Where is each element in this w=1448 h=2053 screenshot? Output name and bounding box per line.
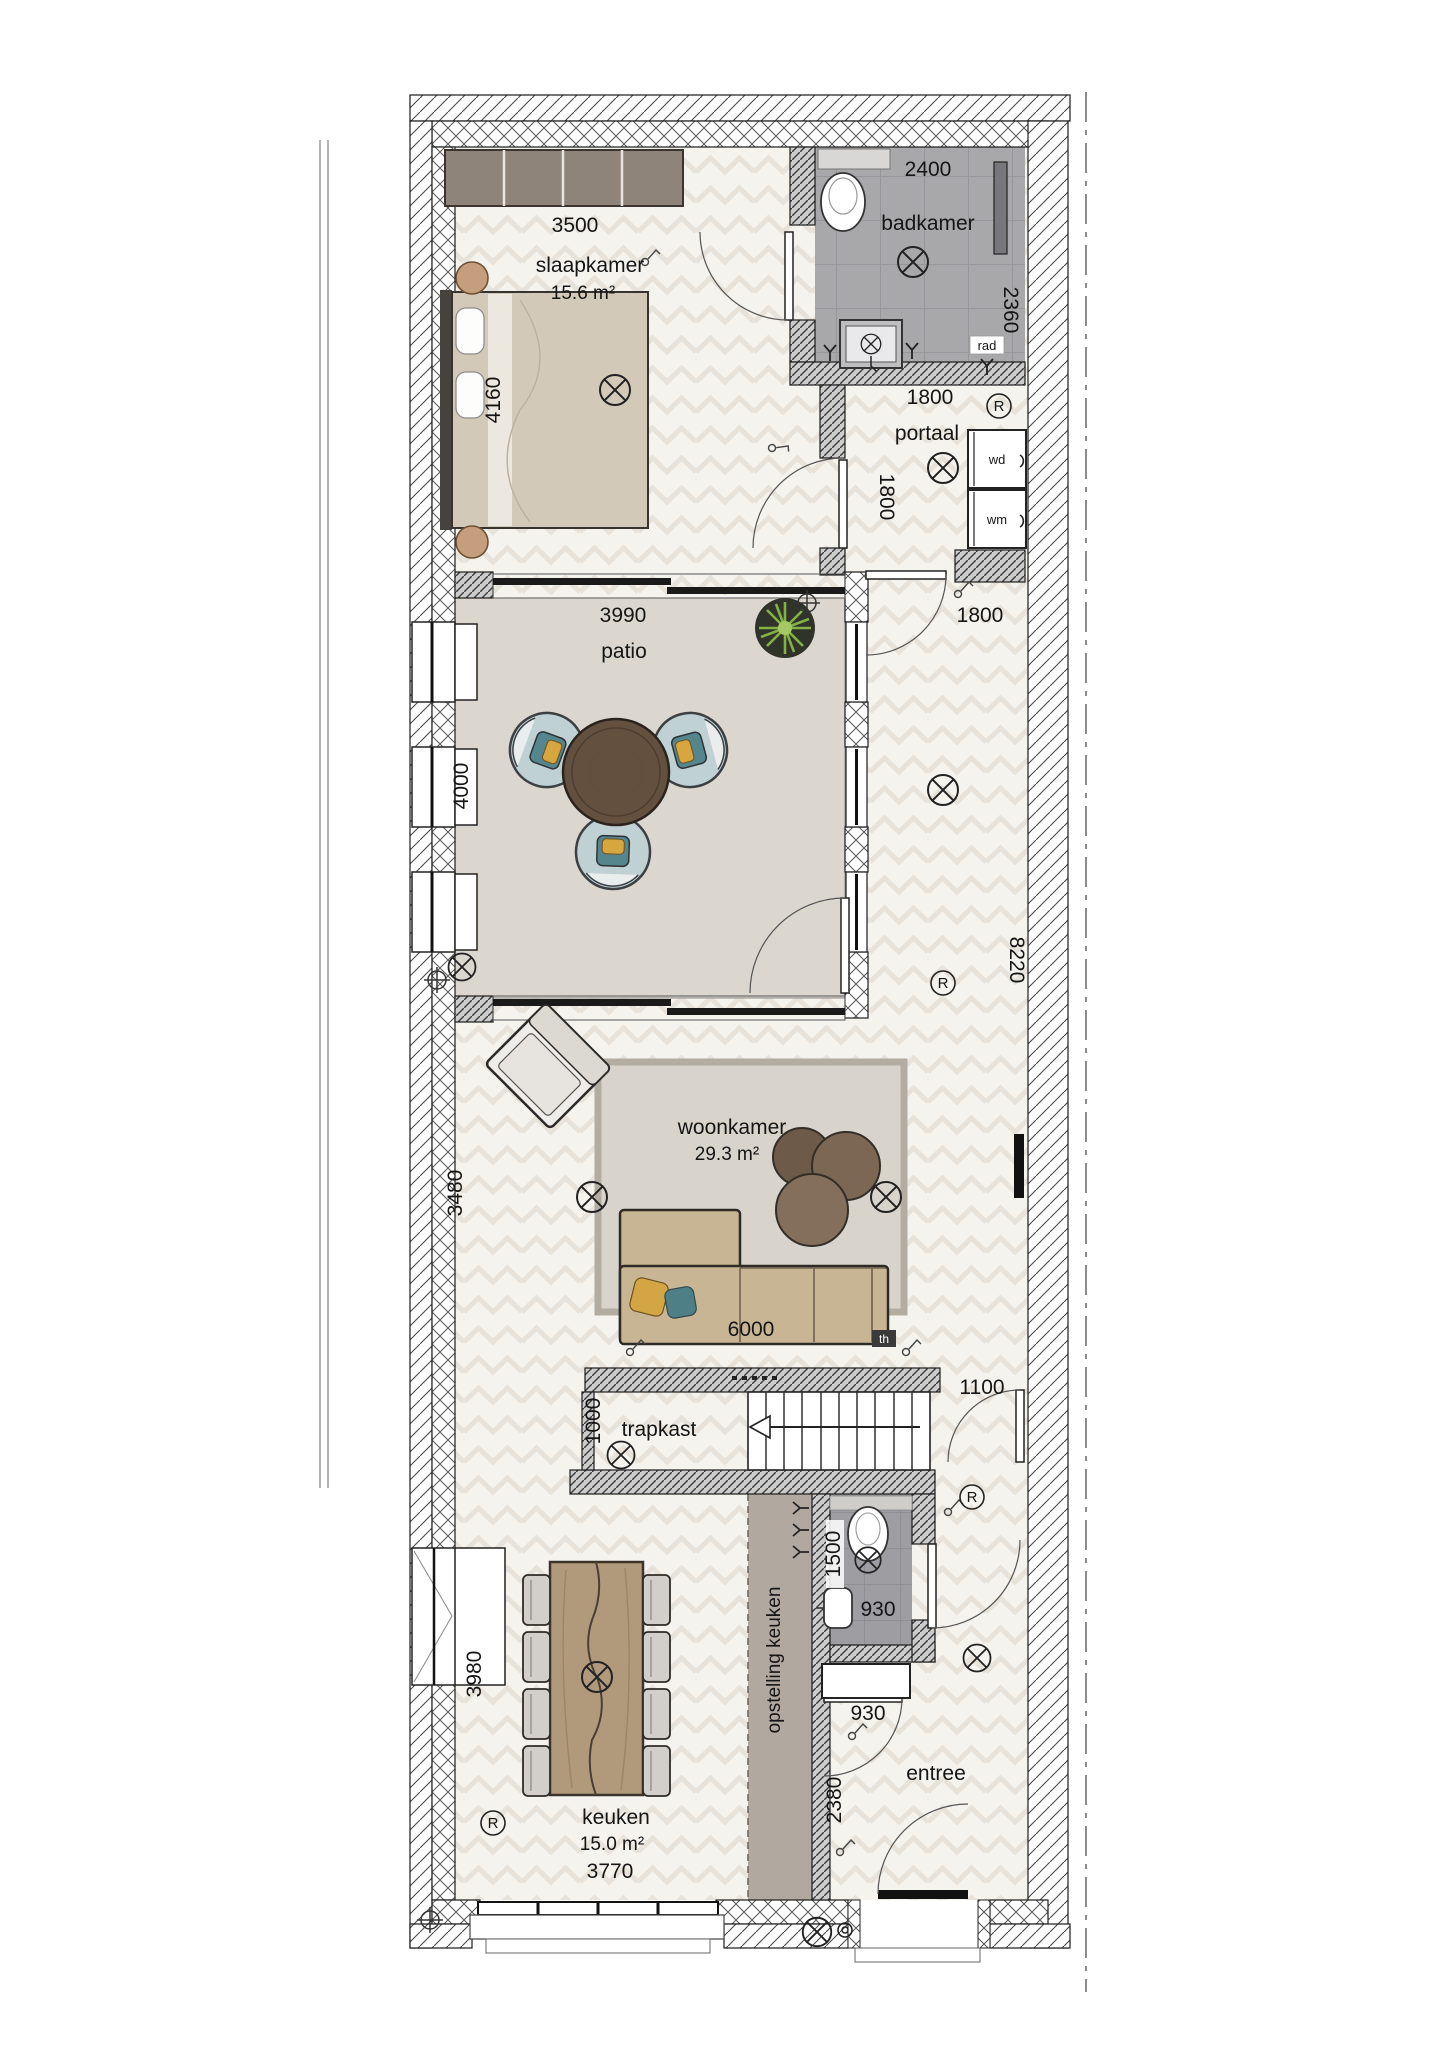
dim-bed: 4160 — [482, 377, 505, 424]
dim-badkamer-onder: 1800 — [907, 386, 954, 409]
room-portaal: portaal — [895, 422, 959, 445]
room-badkamer: badkamer — [881, 212, 974, 235]
dim-entree: 2380 — [823, 1777, 846, 1824]
room-slaapkamer: slaapkamer — [536, 254, 645, 277]
patio-table — [563, 719, 669, 825]
keuken-bottom-window — [470, 1902, 724, 1953]
badkamer-door-leaf — [785, 232, 793, 320]
dim-keuken-zijde: 3980 — [463, 1651, 486, 1698]
wardrobe — [445, 150, 683, 206]
thermostat: th — [872, 1330, 896, 1347]
dim-wc-breedte: 930 — [860, 1598, 895, 1621]
tv — [1014, 1134, 1024, 1198]
dim-wardrobe: 3500 — [552, 214, 599, 237]
tag-rad: rad — [978, 338, 997, 353]
r-entree: R — [967, 1489, 978, 1506]
r-keuken: R — [488, 1815, 499, 1832]
room-trapkast: trapkast — [622, 1418, 697, 1441]
dim-meterkast: 930 — [850, 1702, 885, 1725]
portaal-door-leaf — [839, 460, 847, 548]
shower — [840, 320, 902, 372]
bed — [440, 290, 648, 530]
dim-wc-diepte: 1500 — [822, 1531, 845, 1578]
badkamer-shelf — [818, 149, 890, 169]
dim-patio-breedte: 3990 — [600, 604, 647, 627]
radiator — [994, 162, 1007, 254]
dim-keuken-breedte: 3770 — [587, 1860, 634, 1883]
room-patio: patio — [601, 640, 647, 663]
wc-door-leaf — [928, 1544, 936, 1628]
area-woonkamer: 29.3 m² — [695, 1144, 759, 1165]
room-opstelling-keuken: opstelling keuken — [764, 1587, 785, 1734]
room-entree: entree — [906, 1762, 966, 1785]
nightstand-top — [456, 262, 488, 294]
toilet-wc — [848, 1507, 888, 1561]
keuken-left-window — [412, 1548, 505, 1685]
r-portaal: R — [994, 398, 1005, 415]
dim-hal-lengte: 8220 — [1005, 937, 1028, 984]
dim-badkamer-diepte: 2360 — [999, 287, 1022, 334]
toilet-badkamer — [821, 173, 865, 231]
r-hal: R — [938, 975, 949, 992]
dim-hal-breedte: 1800 — [957, 604, 1004, 627]
tag-wm: wm — [986, 512, 1007, 527]
stairs — [732, 1378, 930, 1470]
tag-wd: wd — [988, 452, 1006, 467]
hal-door-leaf — [866, 571, 946, 579]
front-door-leaf — [878, 1890, 968, 1899]
floorplan-drawing: 3500 slaapkamer 15.6 m² 4160 2400 badkam… — [0, 0, 1448, 2048]
dim-trapkast: 1000 — [582, 1398, 605, 1445]
room-woonkamer: woonkamer — [677, 1116, 787, 1139]
meterkast-box — [822, 1664, 910, 1698]
floorplan-page: 3500 slaapkamer 15.6 m² 4160 2400 badkam… — [0, 0, 1448, 2048]
neighbour-wall-line — [320, 140, 328, 1488]
area-slaapkamer: 15.6 m² — [551, 283, 615, 304]
washbasin — [824, 1588, 852, 1628]
washer-dryer — [968, 430, 1026, 548]
patio-door-leaf — [841, 898, 849, 993]
dim-deur-opening: 1100 — [959, 1376, 1004, 1399]
dim-badkamer-breedte: 2400 — [905, 158, 952, 181]
dim-bank: 6000 — [728, 1318, 775, 1341]
dim-portaal-diepte: 1800 — [875, 474, 898, 521]
woonkamer-door-leaf — [1016, 1390, 1024, 1462]
room-keuken: keuken — [582, 1806, 650, 1829]
area-keuken: 15.0 m² — [580, 1834, 644, 1855]
dim-woonkamer-zijde: 3480 — [444, 1170, 467, 1217]
nightstand-bottom — [456, 526, 488, 558]
tag-th: th — [879, 1332, 889, 1346]
dim-patio-diepte: 4000 — [450, 763, 473, 810]
plant — [755, 598, 815, 658]
